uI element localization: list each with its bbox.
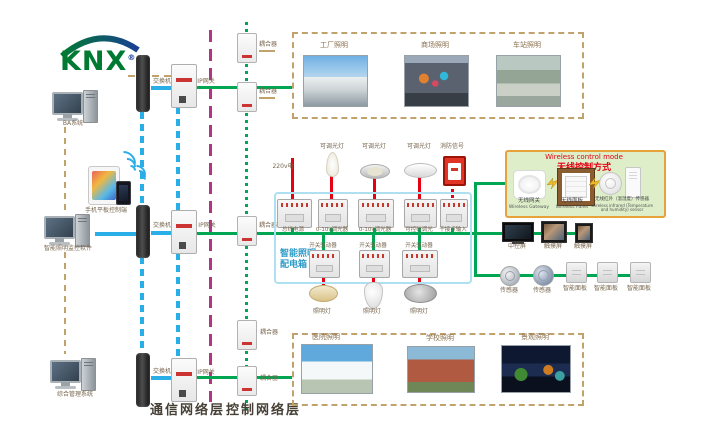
- wireless-ir-sensor-icon: [599, 172, 622, 195]
- monitor-icon: [44, 216, 75, 239]
- smart-panel-label-1: 智能面板: [563, 285, 587, 292]
- knx-logo: KNX®: [58, 32, 148, 78]
- knx-trunk-vertical: [474, 182, 477, 277]
- wireless-panel-label: 无线面板 Wireless Panel: [552, 198, 592, 210]
- station-lighting-label: 车站照明: [513, 42, 541, 49]
- lamp-label-1: 照明灯: [313, 308, 331, 315]
- ba-system-label: BA系统: [63, 120, 83, 127]
- coupler-label-5: 耦合器: [260, 375, 278, 382]
- wireless-sensor-label: 无线红外（温湿度）传感器 Wireless infrared (Temperat…: [591, 197, 653, 213]
- communication-layer-label: 通信网络层: [150, 399, 225, 418]
- hospital-lighting-photo: [301, 344, 373, 394]
- pc-tower-icon: [83, 90, 98, 123]
- wireless-panel-label-en: Wireless Panel: [552, 205, 592, 210]
- lan-switch-riser-lower: [140, 257, 144, 353]
- central-screen-label: 中控屏: [508, 243, 526, 250]
- ip-gateway-2: [171, 210, 197, 254]
- fire-signal-label: 消防信号: [440, 143, 464, 150]
- switch-label-1: 交换机: [153, 78, 171, 85]
- actuator-label-1: 开关驱动器: [309, 243, 337, 250]
- pc-tower-icon: [81, 358, 96, 391]
- phone-icon: [116, 181, 131, 205]
- wireless-branch-line: [477, 182, 506, 185]
- touch-screen-label-2: 触摸屏: [574, 243, 592, 250]
- smart-panel-icon-2: [597, 262, 618, 283]
- sensor-label-2: 传感器: [533, 287, 551, 294]
- monitor-software-computer: [44, 214, 90, 248]
- ethernet-switch-1: [136, 55, 150, 112]
- power-220v-label: 220v电: [272, 163, 293, 170]
- mall-lighting-photo: [404, 55, 469, 107]
- mall-lighting-label: 商场照明: [421, 42, 449, 49]
- bulb-lamp-icon: [364, 282, 383, 309]
- pc-to-switch-link: [95, 232, 137, 236]
- registered-mark: ®: [127, 53, 136, 62]
- dim-light-label-2: 可调光灯: [362, 143, 386, 150]
- lan-switch-riser-upper: [140, 112, 144, 206]
- dim-light-label-1: 可调光灯: [320, 143, 344, 150]
- factory-lighting-photo: [303, 55, 368, 107]
- coupler-underline-1: [259, 50, 275, 52]
- coupler-3: [237, 216, 257, 246]
- coupler-underline-2: [259, 97, 275, 99]
- pc-tower-icon: [75, 214, 90, 247]
- ba-bus-line-lower: [64, 252, 66, 354]
- dimmer-label-1: 0-10v调光器: [316, 227, 348, 234]
- sensor-icon-1: [500, 266, 520, 286]
- panel-title-line2: 配电箱: [280, 260, 307, 270]
- management-system-label: 综合管理系统: [57, 391, 93, 398]
- ethernet-switch-3: [136, 353, 150, 407]
- dimmer-module-2: [358, 199, 394, 228]
- mobile-control-label: 手机平板控制端: [85, 207, 127, 214]
- oval-lamp-icon: [404, 163, 437, 178]
- ba-bus-line-upper: [64, 127, 66, 213]
- switch-gateway-link-1: [151, 86, 171, 90]
- smart-panel-icon-1: [566, 262, 587, 283]
- smart-panel-label-3: 智能面板: [627, 285, 651, 292]
- hospital-lighting-label: 医院照明: [312, 334, 340, 341]
- coupler-label-1: 耦合器: [259, 41, 277, 48]
- lamp-label-3: 照明灯: [410, 308, 428, 315]
- ip-gateway-1: [171, 64, 197, 108]
- dry-contact-module: [440, 199, 468, 228]
- smart-panel-icon-3: [630, 262, 651, 283]
- switch-actuator-1: [309, 250, 340, 278]
- switch-actuator-2: [359, 250, 390, 278]
- diagram-canvas: KNX® BA系统 智能照明监控软件 综合管理系统: [0, 0, 715, 443]
- wireless-gateway-label-en: Wireless Gateway: [507, 205, 551, 210]
- ethernet-switch-2: [136, 205, 150, 258]
- wifi-signal-icon: [130, 168, 146, 184]
- gateway-label-3: IP网关: [197, 369, 214, 376]
- sensor-label-1: 传感器: [500, 287, 518, 294]
- control-layer-label: 控制网络层: [226, 399, 301, 418]
- landscape-lighting-label: 景观照明: [521, 334, 549, 341]
- wireless-sensor-label-en: Wireless infrared (Temperature and humid…: [591, 204, 653, 213]
- gateway-label-1: IP网关: [197, 78, 214, 85]
- coupler-label-2: 耦合器: [259, 88, 277, 95]
- wireless-gateway-label: 无线网关 Wireless Gateway: [507, 198, 551, 210]
- ba-system-computer: [52, 90, 98, 124]
- lan-gateway-riser-lower: [176, 253, 180, 359]
- coupler-1: [237, 33, 257, 63]
- touch-screen-icon-1: [541, 221, 567, 243]
- wireless-gateway-icon: [513, 170, 546, 199]
- dimmer-module-1: [318, 199, 348, 228]
- candle-bulb-icon: [326, 152, 339, 177]
- monitor-icon: [50, 360, 81, 383]
- dim-light-label-3: 可调光灯: [407, 143, 431, 150]
- actuator-label-2: 开关驱动器: [359, 243, 387, 250]
- touch-screen-label-1: 触摸屏: [544, 243, 562, 250]
- switch-label-2: 交换机: [153, 222, 171, 229]
- monitor-software-label: 智能照明监控软件: [44, 245, 92, 252]
- station-lighting-photo: [496, 55, 561, 107]
- lamp-label-2: 照明灯: [363, 308, 381, 315]
- coupler-2: [237, 82, 257, 112]
- central-control-screen-icon: [502, 222, 534, 242]
- switch-gateway-link-2: [151, 231, 171, 235]
- fire-alarm-icon: [443, 156, 466, 186]
- wireless-th-sensor-icon: [625, 167, 641, 198]
- coupler-label-4: 耦合器: [260, 329, 278, 336]
- factory-lighting-label: 工厂照明: [320, 42, 348, 49]
- dry-contact-label: 干接点输入: [439, 227, 467, 234]
- monitor-base: [55, 386, 76, 389]
- management-system-computer: [50, 358, 96, 392]
- coupler-4: [237, 320, 257, 350]
- gateway-label-2: IP网关: [198, 222, 215, 229]
- monitor-icon: [52, 92, 83, 115]
- scr-dimmer-module: [404, 199, 437, 228]
- touch-screen-icon-2: [575, 223, 593, 243]
- dish-lamp-icon: [404, 284, 437, 303]
- school-lighting-label: 学校照明: [426, 335, 454, 342]
- switch-label-3: 交换机: [153, 368, 171, 375]
- dimmer-label-2: 0-10v调光器: [359, 227, 391, 234]
- switch-gateway-link-3: [151, 376, 171, 380]
- scr-dimmer-label: 可控硅调光: [405, 227, 433, 234]
- ceiling-lamp-icon: [309, 285, 338, 302]
- lan-gateway-riser-upper: [176, 107, 180, 211]
- knx-logo-text: KNX®: [60, 46, 136, 77]
- switch-actuator-3: [402, 250, 438, 278]
- downlight-icon: [360, 164, 390, 179]
- coupler-5: [237, 366, 257, 396]
- bus-power-module: [277, 199, 312, 228]
- bus-power-label: 总线电源: [282, 227, 304, 234]
- smart-panel-label-2: 智能面板: [594, 285, 618, 292]
- school-lighting-photo: [407, 346, 475, 393]
- sensor-icon-2: [533, 265, 554, 286]
- ip-gateway-3: [171, 358, 197, 402]
- actuator-label-3: 开关驱动器: [405, 243, 433, 250]
- landscape-lighting-photo: [501, 345, 571, 393]
